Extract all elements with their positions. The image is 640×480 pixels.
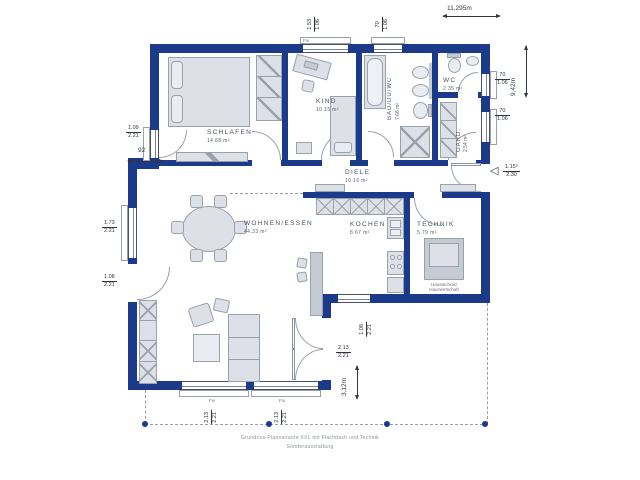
wardrobe-section [257,98,281,120]
door-swing-arc [252,131,281,160]
open-boundary-dashed [230,193,303,194]
chair [171,221,184,234]
pillow [171,61,183,89]
window [128,208,137,258]
dim-total-height: 9,42m [510,48,517,96]
burner [390,264,395,269]
armchair [187,302,214,328]
terrace-side-door [338,294,370,303]
chair [301,79,315,93]
dim-height: 2.21 [336,353,351,360]
dim-height: 2.21 [102,228,117,235]
wall [128,302,137,390]
dim-width: 1.73 [102,220,117,228]
sideboard [315,184,345,192]
room-area: 2.54 m² [463,112,469,152]
dim-south-window-left: 2.132.21 [200,402,222,432]
wall [442,192,481,198]
room-name: WOHNEN/ESSEN [244,220,313,227]
pillow [334,142,352,153]
terrace-door-opening [322,318,331,380]
kitchen-tall-cabinets [316,198,404,215]
burner [397,264,402,269]
kitchen-sink-unit [387,217,404,239]
terrace-corner-dot [142,421,148,427]
coffee-table [193,334,220,362]
room-label-wohnen: WOHNEN/ESSEN 44.33 m² [244,220,313,235]
room-name: KIND [316,98,337,105]
room-label-bad: BAD/DU/WC 7.66 m² [387,62,401,120]
pillow [171,95,183,123]
dim-west-window-schlafen: 1.092.21 [126,124,141,142]
dim-value: 3,12m [341,366,348,396]
tv-cabinet [139,300,157,384]
window-sill [143,127,150,161]
dim-width: 1.08 [359,322,367,337]
wall [350,160,368,166]
dim-height: 2.21 [212,410,219,425]
bar-stool [296,257,308,269]
room-area: 10.16 m² [345,178,370,184]
arrow-left [439,14,447,18]
wall [128,169,137,208]
entrance-opening [481,164,490,192]
sink [412,84,429,97]
cabinet-cell [317,199,334,214]
dim-height: 1.06 [495,116,510,123]
terrace-dashed-line [487,303,488,424]
dim-south-window-right: 2.132.21 [270,402,292,432]
wall [281,160,322,166]
dim-terrace-side-door: 1.082.21 [356,314,376,344]
wardrobe-section [441,139,456,157]
dim-entrance-door: 1.15⁵2.30 [503,163,520,181]
wall [322,380,331,390]
terrace-dashed-line [145,390,146,424]
dim-width: 1.15⁵ [503,164,520,172]
sink-basin [390,220,401,228]
dim-width: 2.13 [336,345,351,353]
dim-height: 2.21 [282,410,289,425]
window [150,130,159,158]
room-area: 7.66 m² [395,62,401,120]
dim-north-window-bad: 701.06 [372,8,392,40]
dim-width: 2.13 [274,410,282,425]
window [254,381,318,390]
room-name: GARD. [456,112,462,152]
chair [214,249,227,262]
dim-width: 1.08 [102,274,117,282]
dim-arrow-line [357,366,358,396]
cabinet-cell [140,341,156,362]
door-swing-arc [295,318,323,349]
terrace-dashed-line [145,424,488,425]
hvac-equipment [424,238,464,280]
bathtub [364,55,386,109]
dim-east-window-wc: 701.06 [495,71,510,89]
wardrobe [256,55,282,121]
door-opening [128,264,137,302]
terrace-corner-dot [384,421,390,427]
arrow-down [355,395,359,403]
sofa-cushion-line [229,337,259,338]
dim-height: 2.21 [102,282,117,289]
room-area: 5.79 m² [417,230,455,236]
dim-height: 2.30 [503,172,520,179]
cabinet-cell [368,199,385,214]
room-name: TECHNIK [417,221,455,228]
cabinet-cell [140,362,156,383]
arrow-up [524,42,528,50]
cabinet-cell [140,321,156,341]
wardrobe-section [441,121,456,139]
stove [387,251,404,275]
room-label-wc: WC 2.35 m² [443,77,463,92]
wall [370,294,490,303]
dim-arrow-line [443,16,499,17]
room-label-kochen: KOCHEN 8.67 m² [350,221,386,236]
room-area: 8.67 m² [350,230,386,236]
entrance-marker-icon: ◁ [490,164,498,177]
arrow-right [496,14,504,18]
equipment-panel [429,243,459,267]
wall [246,381,254,390]
arrow-right [159,159,167,163]
dim-wall-jog: 92 [138,147,145,154]
room-label-gard: GARD. 2.54 m² [456,112,469,152]
toilet [413,102,428,119]
dim-width: 70 [375,17,383,32]
wardrobe [440,102,457,158]
burner [390,255,395,260]
wall [481,44,490,74]
terrace-corner-dot [482,421,488,427]
room-area: 2.35 m² [443,86,463,92]
door-swing-arc [368,131,394,157]
dim-width: 70 [495,72,510,80]
wall [150,44,159,130]
room-label-technik: TECHNIK 5.79 m² [417,221,455,236]
sideboard [440,184,476,192]
arrow-left [124,159,132,163]
dim-width: 70 [495,108,510,116]
dim-height: 1.06 [383,17,390,32]
window-sill [251,390,321,397]
cabinet-cell [351,199,368,214]
arrow-up [355,362,359,370]
cabinet-cell [334,199,351,214]
dim-west-window-wohnen: 1.732.21 [102,219,117,237]
vanity-backplate [429,63,432,99]
kitchen-base-cabinet [387,277,404,293]
sink [412,66,429,79]
dim-west-door-wohnen: 1.082.21 [102,273,117,291]
technik-note: Haustechnik/ Hauswirtschaft [416,282,472,292]
sink [466,56,479,66]
plan-footer: Grundriss-Planvariante XXL mit Flachdach… [150,434,470,451]
footer-line1: Grundriss-Planvariante XXL mit Flachdach… [241,435,379,441]
dim-arrow-line [526,46,527,94]
dim-width: 1.53 [307,17,315,32]
toilet [448,58,461,73]
room-name: SCHLAFEN [207,129,252,136]
side-table [296,142,312,154]
door-swing-arc [137,267,170,300]
dim-total-width: 11,295m [447,5,472,12]
wardrobe-section [257,77,281,98]
room-name: DIELE [345,169,370,176]
room-name: BAD/DU/WC [387,62,393,120]
dim-east-window-gard: 701.06 [495,107,510,125]
dim-width: 1.09 [126,125,141,133]
toilet-tank [428,104,432,117]
room-label-schlafen: SCHLAFEN 14.68 m² [207,129,252,144]
wall [348,44,374,53]
dim-height: 2.21 [367,322,374,337]
dim-arrow-line [128,161,162,162]
wall [432,53,438,160]
wall [150,44,303,53]
cabinet-cell [140,301,156,321]
window [303,44,348,53]
room-area: 44.33 m² [244,229,313,235]
dim-width: 2.13 [204,410,212,425]
dresser [176,152,248,162]
floor-plan: Haustechnik/ Hauswirtschaft SCHLAFEN 14.… [0,0,640,480]
room-area: 14.68 m² [207,138,252,144]
ottoman [213,298,230,314]
wall [481,96,490,112]
wall [356,53,362,160]
bar-stool [296,271,307,282]
dim-terrace-depth: 3,12m [341,366,348,396]
window-sill [179,390,249,397]
sink-basin [390,229,401,236]
chair [190,195,203,208]
dim-height: 1.06 [495,80,510,87]
wall [404,198,410,294]
burner [397,255,402,260]
wall [481,192,490,303]
wall [322,294,338,303]
door-swing-arc [295,349,323,380]
sofa-cushion-line [229,359,259,360]
wardrobe-section [257,56,281,77]
wall [481,142,490,164]
room-area: 10.15 m² [316,107,339,113]
dim-height: 2.21 [126,133,141,140]
terrace-corner-dot [266,421,272,427]
bathtub-inner [367,58,383,106]
room-label-kind: KIND 10.15 m² [316,98,339,113]
window [182,381,246,390]
dim-north-window-kind: 1.531.06 [304,8,324,40]
window [481,112,490,142]
dim-value: 9,42m [510,48,517,96]
dim-terrace-door: 2.132.21 [336,344,351,362]
technik-note-line2: Hauswirtschaft [429,287,459,292]
room-label-diele: DIELE 10.16 m² [345,169,370,184]
shower [400,126,430,158]
wall [438,92,458,98]
footer-line2: Sonderausstattung [286,444,333,450]
wall [394,160,448,166]
wall [282,53,288,160]
sofa [228,314,260,382]
window [374,44,402,53]
arrow-down [524,93,528,101]
window-sill [121,205,128,261]
room-name: WC [443,77,456,84]
wardrobe-section [441,103,456,121]
chair [214,195,227,208]
cabinet-cell [385,199,403,214]
window [481,74,490,96]
dining-table [182,206,236,252]
room-name: KOCHEN [350,221,386,228]
fix-label: Fix [303,38,309,43]
wall [402,44,490,53]
dim-height: 1.06 [315,17,322,32]
chair [190,249,203,262]
kitchen-island [310,252,323,316]
